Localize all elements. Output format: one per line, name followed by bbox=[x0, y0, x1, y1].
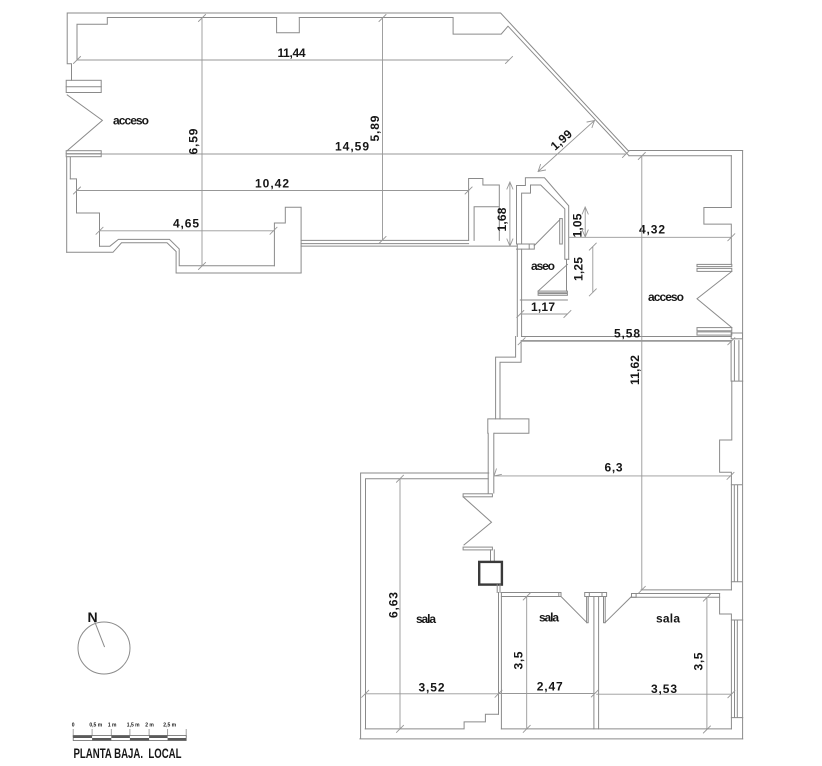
svg-text:sala: sala bbox=[539, 611, 559, 625]
svg-text:14,59: 14,59 bbox=[335, 140, 369, 154]
svg-text:6,3: 6,3 bbox=[605, 461, 623, 475]
svg-text:N: N bbox=[87, 609, 97, 625]
svg-text:1 m: 1 m bbox=[108, 723, 117, 729]
svg-text:11,62: 11,62 bbox=[628, 355, 642, 385]
svg-text:6,59: 6,59 bbox=[187, 128, 201, 154]
svg-text:4,32: 4,32 bbox=[639, 223, 665, 237]
svg-text:1,68: 1,68 bbox=[495, 207, 509, 231]
svg-text:PLANTA BAJA. LOCAL: PLANTA BAJA. LOCAL bbox=[74, 746, 182, 761]
svg-text:2,5 m: 2,5 m bbox=[163, 723, 176, 729]
svg-text:0: 0 bbox=[72, 723, 75, 729]
svg-text:3,53: 3,53 bbox=[651, 682, 677, 696]
svg-text:3,5: 3,5 bbox=[512, 651, 526, 669]
svg-text:11,44: 11,44 bbox=[278, 46, 306, 60]
svg-text:0,5 m: 0,5 m bbox=[89, 723, 102, 729]
svg-text:2,47: 2,47 bbox=[537, 680, 563, 694]
svg-text:3,52: 3,52 bbox=[419, 681, 445, 695]
svg-text:4,65: 4,65 bbox=[173, 217, 199, 231]
svg-text:1,17: 1,17 bbox=[531, 300, 555, 314]
svg-text:acceso: acceso bbox=[648, 290, 684, 304]
svg-text:sala: sala bbox=[416, 612, 436, 626]
svg-text:1,5 m: 1,5 m bbox=[127, 723, 140, 729]
svg-text:5,58: 5,58 bbox=[614, 327, 640, 341]
svg-text:2 m: 2 m bbox=[145, 723, 154, 729]
svg-text:sala: sala bbox=[656, 612, 680, 626]
svg-text:acceso: acceso bbox=[113, 114, 149, 128]
svg-text:1,25: 1,25 bbox=[572, 257, 586, 281]
svg-text:10,42: 10,42 bbox=[255, 177, 289, 191]
svg-text:5,89: 5,89 bbox=[368, 115, 382, 141]
svg-text:6,63: 6,63 bbox=[387, 592, 401, 618]
svg-text:3,5: 3,5 bbox=[692, 652, 706, 670]
svg-text:1,05: 1,05 bbox=[571, 213, 585, 237]
svg-text:aseo: aseo bbox=[531, 259, 555, 273]
